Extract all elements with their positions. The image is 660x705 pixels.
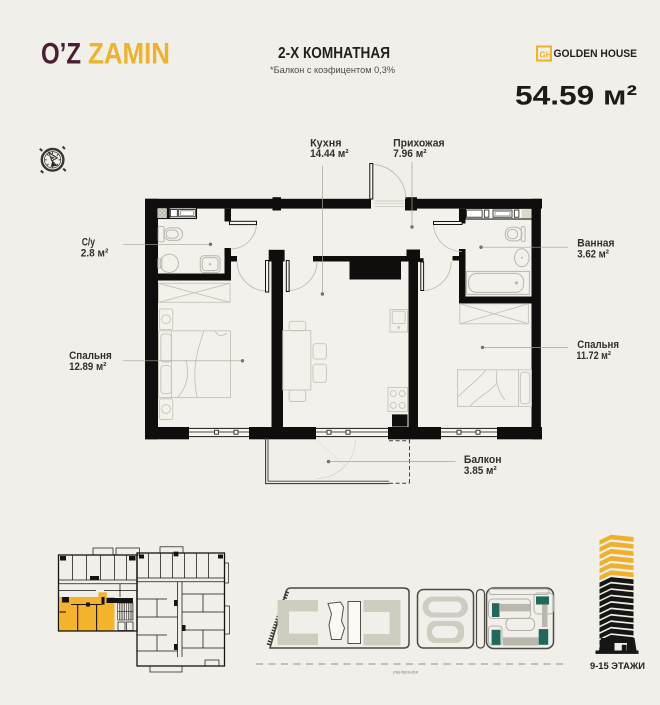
svg-text:14.44 м²: 14.44 м² — [310, 148, 349, 160]
svg-text:2.8 м²: 2.8 м² — [81, 248, 109, 260]
svg-text:улица Фаргона йули: улица Фаргона йули — [393, 669, 418, 675]
svg-text:3.62 м²: 3.62 м² — [577, 249, 609, 261]
svg-text:O’Z: O’Z — [41, 38, 81, 71]
svg-text:*Балкон с коэфицентом 0,3%: *Балкон с коэфицентом 0,3% — [270, 65, 396, 76]
svg-text:7.96 м²: 7.96 м² — [393, 148, 427, 160]
svg-text:9-15 ЭТАЖИ: 9-15 ЭТАЖИ — [590, 661, 645, 671]
svg-text:3.85 м²: 3.85 м² — [464, 465, 497, 477]
svg-text:GOLDEN HOUSE: GOLDEN HOUSE — [554, 48, 638, 60]
svg-text:12.89 м²: 12.89 м² — [69, 361, 107, 373]
svg-text:54.59 м²: 54.59 м² — [515, 81, 637, 111]
svg-text:11.72 м²: 11.72 м² — [576, 350, 611, 362]
svg-text:ZAMIN: ZAMIN — [88, 38, 170, 71]
svg-text:GH: GH — [540, 51, 552, 60]
svg-text:2-Х КОМНАТНАЯ: 2-Х КОМНАТНАЯ — [278, 45, 390, 62]
